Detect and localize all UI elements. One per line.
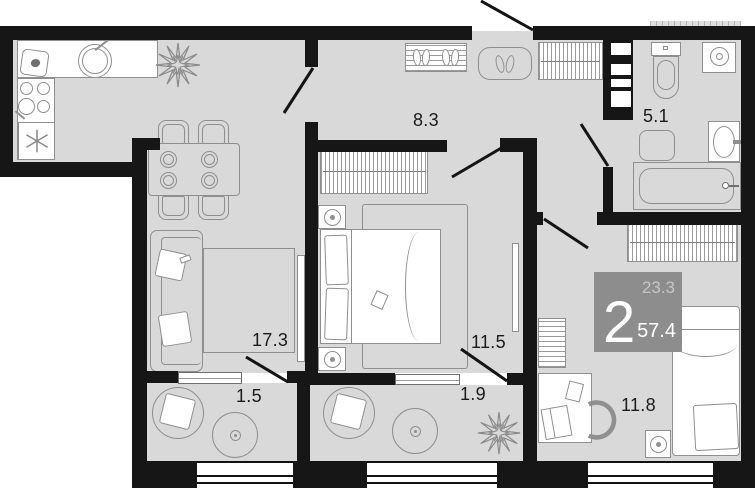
bath-mat (639, 130, 675, 161)
shoe (450, 49, 460, 67)
washing-machine (702, 42, 736, 73)
wall-loggia1-left (147, 371, 178, 383)
dining-chair (158, 193, 189, 220)
single-bed (672, 306, 740, 456)
sink-faucet (733, 140, 741, 144)
bedroom-wardrobe (320, 148, 428, 194)
entrance-door-leaf (481, 1, 533, 30)
wall-loggia2-left (310, 373, 395, 385)
doorway-floor-bedroom2 (543, 212, 597, 225)
wall-lower-left-stub (147, 138, 160, 150)
wall-hall-bedroom (318, 140, 447, 152)
outside-notch (0, 177, 132, 488)
plate (201, 151, 218, 168)
badge-rooms-count: 2 (603, 294, 635, 352)
badge-total-area: 57.4 (637, 320, 676, 343)
neighbor-sliver (650, 21, 741, 26)
pouf (478, 47, 532, 80)
wall-bottom-pier (293, 461, 367, 488)
pan (18, 98, 35, 115)
area-label-loggia-right: 1.9 (460, 384, 486, 405)
bedroom2-wardrobe (627, 222, 738, 262)
wall-bedroom2-stub (523, 212, 543, 225)
laptop (541, 405, 573, 440)
area-label-bedroom: 11.5 (471, 332, 506, 353)
plate (160, 172, 177, 189)
wall-bedroom-right (523, 138, 537, 464)
wall-bottom-pier (132, 461, 197, 488)
wall-bedroom-corner (500, 138, 523, 152)
sofa-pillow (154, 248, 187, 281)
slipper (494, 54, 506, 73)
tub-faucet (722, 182, 729, 189)
wall-top-left (0, 26, 472, 40)
shaft-slot (611, 43, 631, 55)
fridge (18, 122, 55, 160)
doorway-floor-bedroom (447, 140, 500, 152)
plate (160, 151, 177, 168)
shoe (441, 49, 451, 67)
badge-living-area: 23.3 (642, 278, 675, 298)
sofa (150, 230, 203, 372)
wall-bath-bottom (597, 212, 741, 225)
bed-pillow (693, 403, 739, 451)
blanket-fold (405, 232, 433, 341)
wall-lower-left (132, 138, 147, 488)
wall-bottom-pier (713, 461, 755, 488)
blanket-fold (675, 331, 737, 357)
apartment-badge: 2 23.3 57.4 (594, 272, 682, 352)
stove (18, 80, 55, 120)
shoe (412, 49, 422, 67)
nightstand (318, 347, 346, 371)
area-label-bathroom: 5.1 (643, 106, 669, 127)
wall-outer-left (0, 26, 13, 177)
round-table (392, 408, 438, 454)
shaft-slot (611, 91, 631, 107)
sofa-pillow (158, 311, 193, 347)
bookshelf (538, 318, 566, 368)
doorway-floor-bathroom (603, 120, 613, 167)
food-blob (30, 59, 40, 68)
shoe (421, 49, 431, 67)
window-loggia-right (367, 461, 497, 488)
area-label-hallway: 8.3 (413, 110, 439, 131)
wall-kitchen-stub (305, 40, 318, 67)
window-living-loggia (178, 372, 242, 384)
window-bedroom-loggia (395, 374, 460, 385)
nightstand (318, 205, 346, 229)
area-label-living: 17.3 (252, 330, 288, 351)
wall-bath-lower (603, 167, 613, 212)
wall-top-right (533, 26, 755, 40)
shaft-slot (611, 79, 631, 87)
armchair (323, 387, 377, 441)
dining-chair (198, 193, 229, 220)
wall-bottom-pier (497, 461, 588, 488)
round-table (212, 412, 258, 458)
double-bed (320, 229, 441, 344)
book-on-bed (370, 290, 388, 310)
toilet (650, 42, 682, 100)
hall-closet (538, 42, 603, 80)
shaft-slot (611, 64, 631, 75)
bathtub (633, 162, 741, 210)
wall-outer-right (741, 26, 755, 488)
window-loggia-left (197, 461, 293, 488)
tv-panel-bedroom (512, 243, 519, 332)
area-label-bedroom2: 11.8 (621, 395, 656, 416)
wall-step (0, 162, 132, 177)
kitchen-sink (78, 44, 112, 78)
plant-icon (476, 410, 522, 456)
armchair (152, 387, 206, 441)
fridge-asterisk-icon (22, 126, 52, 156)
bathroom-sink (708, 121, 740, 162)
wall-kitchen-divider (305, 122, 318, 373)
slipper (504, 54, 516, 73)
corridor-floor (537, 140, 603, 212)
floor-plan: 8.3 5.1 17.3 11.5 1.5 1.9 11.8 2 23.3 57… (0, 0, 755, 488)
shoe-rack (405, 43, 467, 72)
bed-pillow (324, 235, 349, 286)
bed-pillow (324, 288, 349, 341)
window-bedroom2 (588, 461, 713, 488)
dining-table (148, 143, 240, 196)
plate (201, 172, 218, 189)
wall-loggia2-stub (507, 373, 523, 385)
doorway-floor-entrance (472, 31, 533, 40)
desk-chair (576, 398, 620, 442)
plant-icon (154, 41, 202, 89)
cutting-board (19, 48, 49, 78)
ventilation-shaft (603, 26, 633, 120)
plant-stand (645, 430, 671, 458)
tv-panel-living (297, 255, 305, 362)
area-label-loggia-left: 1.5 (236, 386, 262, 407)
